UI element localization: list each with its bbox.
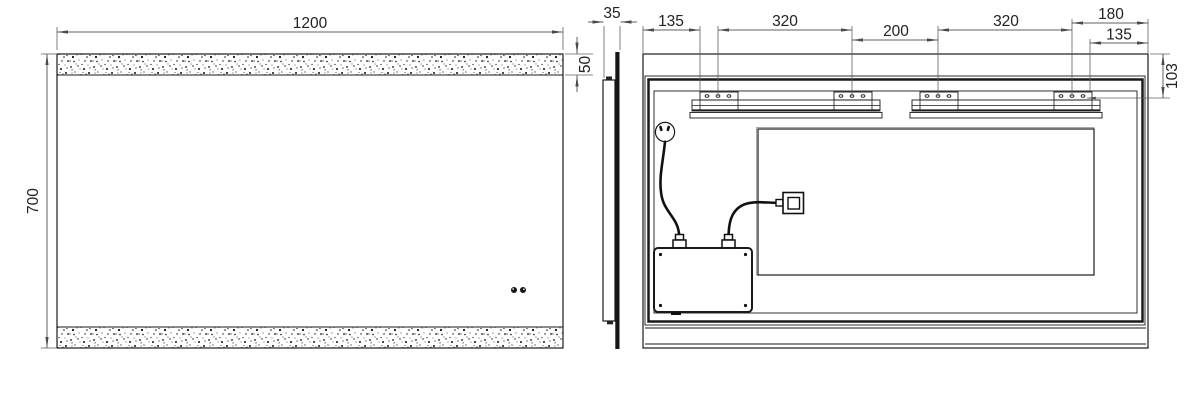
- dim-180-label: 180: [1098, 6, 1124, 23]
- led-panel: [758, 129, 1094, 275]
- power-plug-icon: [655, 122, 674, 141]
- drawing-canvas: 1200 700 50 35: [0, 0, 1201, 405]
- box-mount-tab: [671, 312, 681, 315]
- dim-135-right-label: 135: [1106, 27, 1132, 44]
- side-view: 35: [588, 5, 637, 349]
- bracket-profile-top: [606, 77, 612, 81]
- frosted-strip-bottom: [57, 327, 563, 348]
- mounting-rail-left: [690, 92, 882, 118]
- frame-profile: [603, 80, 615, 321]
- glass-profile: [615, 52, 619, 349]
- screw-icon: [659, 253, 662, 256]
- mirror-outline: [57, 54, 563, 348]
- dim-700-label: 700: [25, 188, 42, 214]
- screw-icon: [659, 304, 662, 307]
- cable-gland-right: [722, 235, 735, 249]
- screw-icon: [744, 253, 747, 256]
- dim-200-label: 200: [883, 23, 909, 40]
- back-view: 135 320 200 320 180 135 103: [643, 6, 1181, 348]
- touch-sensor-dots: [511, 287, 526, 293]
- dim-50-label: 50: [577, 56, 594, 74]
- front-view: 1200 700 50: [25, 15, 594, 348]
- screw-icon: [744, 304, 747, 307]
- dim-320-right-label: 320: [993, 13, 1019, 30]
- power-cord: [660, 142, 679, 234]
- dim-320-left-label: 320: [772, 13, 798, 30]
- dim-35-label: 35: [603, 5, 620, 22]
- switch-cable: [729, 202, 777, 239]
- bracket-profile-bottom: [607, 321, 613, 325]
- dim-1200-label: 1200: [293, 15, 328, 32]
- frosted-strip-top: [57, 54, 563, 75]
- mounting-rail-right: [910, 92, 1102, 118]
- cable-gland-left: [673, 235, 686, 249]
- touch-switch: [776, 193, 804, 214]
- junction-box: [654, 248, 752, 315]
- technical-drawing: 1200 700 50 35: [0, 0, 1201, 405]
- dim-135-left-label: 135: [658, 13, 684, 30]
- led-panel-shadow: [757, 128, 1095, 276]
- dim-103-label: 103: [1164, 63, 1181, 89]
